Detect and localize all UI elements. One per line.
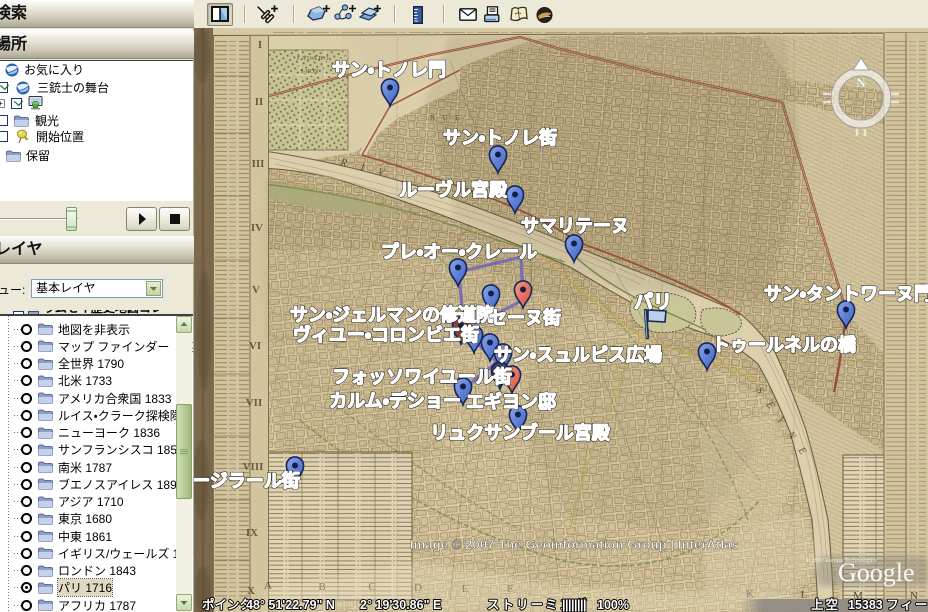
svg-text:48° 51'22.79" N: 48° 51'22.79" N: [246, 598, 335, 612]
svg-text:サン・トノレ門: サン・トノレ門: [332, 60, 446, 80]
svg-text:F A U X B O: F A U X B O: [297, 56, 329, 62]
svg-text:サマリテーヌ: サマリテーヌ: [521, 216, 629, 236]
svg-text:サン・トノレ街: サン・トノレ街: [443, 127, 557, 148]
svg-text:フォッソワイユール街: フォッソワイユール街: [332, 366, 512, 387]
svg-text:トゥールネルの橋: トゥールネルの橋: [712, 334, 857, 355]
svg-text:上空: 上空: [811, 597, 840, 612]
svg-text:15383 フィート: 15383 フィート: [848, 598, 928, 612]
svg-text:ヴィユー・コロンビエ街: ヴィユー・コロンビエ街: [293, 324, 479, 345]
svg-text:サン・ジェルマンの修道院: サン・ジェルマンの修道院: [290, 304, 494, 325]
svg-text:S-HON: S-HON: [300, 69, 319, 75]
svg-text:パリ: パリ: [634, 291, 672, 313]
svg-text:2° 19'30.86" E: 2° 19'30.86" E: [360, 598, 441, 612]
svg-text:ポインタ: ポインタ: [202, 597, 252, 612]
svg-text:ルーヴル宮殿: ルーヴル宮殿: [399, 179, 508, 200]
svg-text:サン・スュルピス広場: サン・スュルピス広場: [494, 344, 662, 365]
svg-text:100%: 100%: [597, 598, 629, 612]
svg-text:プレ・オー・クレール: プレ・オー・クレール: [381, 241, 537, 262]
svg-text:© 2007 Europa Technologies: © 2007 Europa Technologies: [806, 557, 877, 564]
svg-text:ヴォージラール街: ヴォージラール街: [194, 470, 300, 491]
svg-text:エギヨン邸: エギヨン邸: [466, 391, 556, 412]
svg-text:サン・タントワーヌ門: サン・タントワーヌ門: [764, 284, 928, 304]
svg-text:セーヌ街: セーヌ街: [489, 307, 561, 328]
svg-text:N: N: [856, 75, 866, 90]
svg-text:カルム・デショー: カルム・デショー: [329, 390, 461, 411]
svg-text:Image © 2007 The Geoinformatio: Image © 2007 The Geoinformation Group | …: [410, 537, 739, 552]
svg-text:リュクサンブール宮殿: リュクサンブール宮殿: [430, 422, 610, 443]
svg-text:||||||||: ||||||||: [562, 598, 586, 612]
